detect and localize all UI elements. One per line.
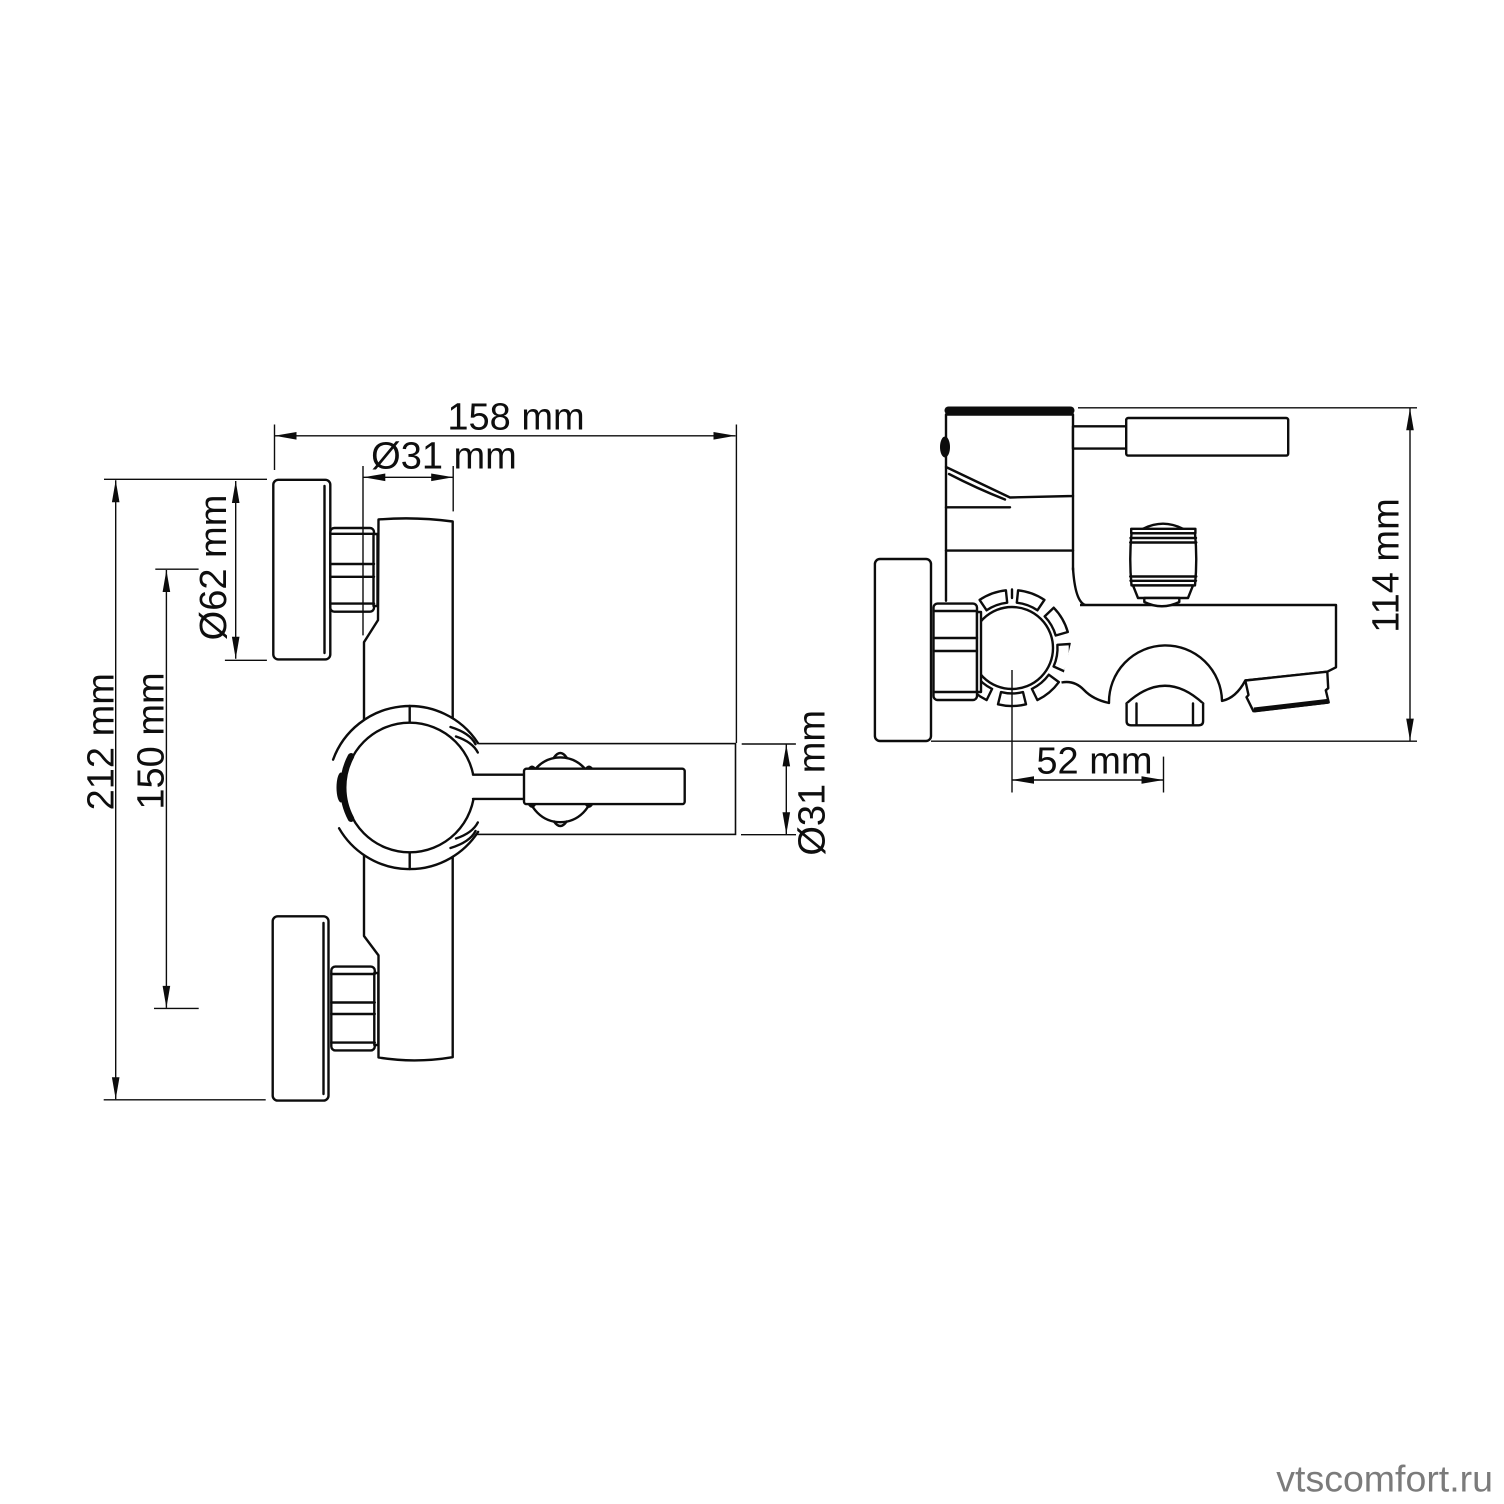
svg-text:Ø62 mm: Ø62 mm bbox=[193, 495, 235, 641]
svg-text:158 mm: 158 mm bbox=[447, 397, 584, 439]
svg-text:52 mm: 52 mm bbox=[1036, 741, 1152, 783]
svg-text:114 mm: 114 mm bbox=[1366, 498, 1408, 632]
svg-text:Ø31 mm: Ø31 mm bbox=[792, 710, 834, 856]
svg-text:Ø31 mm: Ø31 mm bbox=[371, 436, 517, 478]
svg-text:vtscomfort.ru: vtscomfort.ru bbox=[1276, 1458, 1493, 1500]
